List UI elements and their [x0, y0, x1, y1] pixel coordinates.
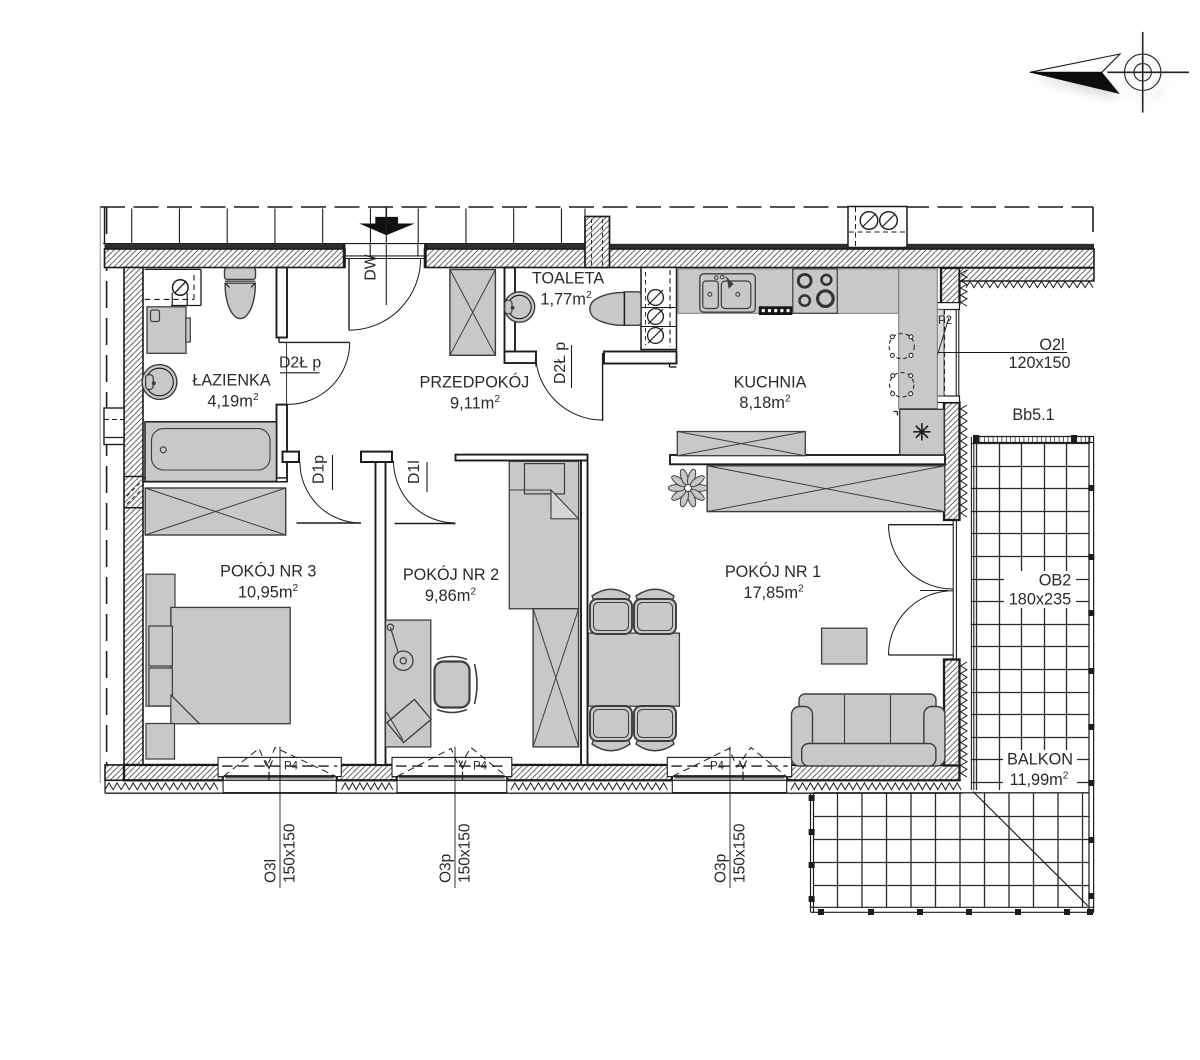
svg-text:150x150: 150x150 — [457, 823, 474, 883]
svg-text:150x150: 150x150 — [282, 823, 299, 883]
svg-text:KUCHNIA: KUCHNIA — [734, 374, 807, 392]
svg-text:9,86m2: 9,86m2 — [425, 587, 477, 606]
svg-text:P2: P2 — [938, 315, 952, 327]
svg-text:120x150: 120x150 — [1008, 354, 1070, 372]
svg-text:POKÓJ NR 2: POKÓJ NR 2 — [403, 565, 499, 584]
svg-text:9,11m2: 9,11m2 — [450, 394, 500, 413]
svg-text:BALKON: BALKON — [1007, 751, 1073, 769]
svg-text:O2l: O2l — [1039, 336, 1064, 354]
svg-text:P4: P4 — [284, 761, 299, 773]
svg-text:11,99m2: 11,99m2 — [1010, 771, 1069, 790]
svg-text:O3p: O3p — [438, 854, 455, 883]
svg-text:POKÓJ NR 3: POKÓJ NR 3 — [220, 562, 316, 581]
svg-text:POKÓJ NR 1: POKÓJ NR 1 — [725, 562, 821, 581]
svg-text:10,95m2: 10,95m2 — [238, 583, 299, 602]
svg-text:TOALETA: TOALETA — [532, 270, 604, 288]
svg-text:P4: P4 — [710, 761, 725, 773]
svg-text:DW: DW — [363, 254, 380, 280]
svg-text:O3l: O3l — [263, 859, 280, 883]
svg-text:ŁAZIENKA: ŁAZIENKA — [192, 372, 270, 390]
svg-text:D1l: D1l — [406, 460, 423, 484]
svg-text:8,18m2: 8,18m2 — [739, 394, 791, 413]
svg-text:D2Ł p: D2Ł p — [279, 354, 321, 371]
svg-text:1,77m2: 1,77m2 — [540, 290, 592, 309]
svg-text:O3p: O3p — [713, 854, 730, 883]
svg-text:17,85m2: 17,85m2 — [743, 584, 804, 603]
svg-text:P4: P4 — [473, 761, 488, 773]
svg-text:150x150: 150x150 — [732, 823, 749, 883]
svg-text:D2Ł p: D2Ł p — [552, 342, 569, 384]
svg-text:Bb5.1: Bb5.1 — [1012, 406, 1054, 424]
svg-text:D1p: D1p — [311, 455, 328, 484]
svg-text:PRZEDPOKÓJ: PRZEDPOKÓJ — [420, 373, 530, 392]
svg-text:180x235: 180x235 — [1009, 591, 1071, 609]
svg-text:4,19m2: 4,19m2 — [207, 392, 259, 411]
svg-text:OB2: OB2 — [1039, 572, 1072, 590]
